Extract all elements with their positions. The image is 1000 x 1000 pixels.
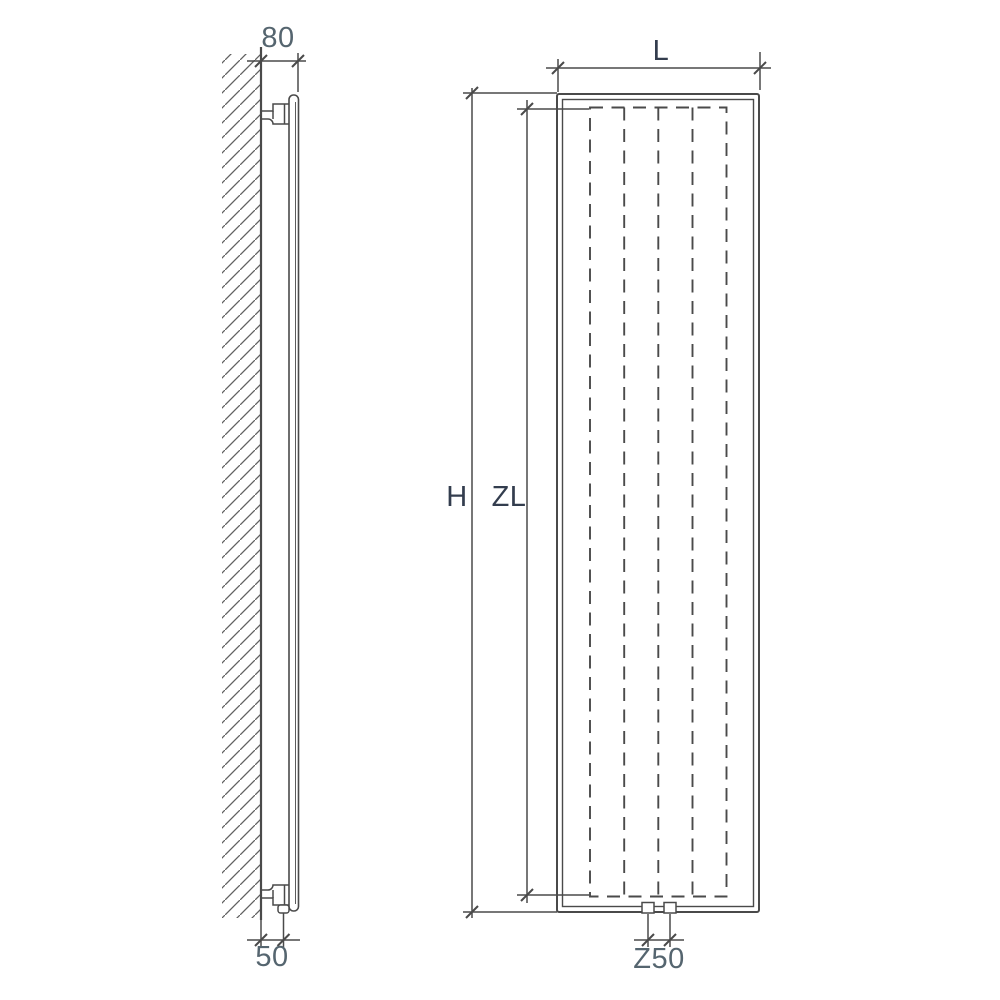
top-bracket [262, 104, 289, 124]
dim-label-ZL: ZL [492, 483, 527, 512]
radiator-technical-drawing: 80 50 L H ZL Z50 [0, 0, 1000, 1000]
side-view [222, 47, 306, 947]
wall-hatching [222, 54, 260, 918]
dim-label-80: 80 [261, 24, 294, 53]
radiator-side-panel [289, 95, 299, 911]
dim-label-L: L [653, 37, 670, 66]
dim-label-50: 50 [255, 943, 288, 972]
bottom-bracket [262, 885, 289, 905]
bottom-pipe [278, 905, 289, 913]
dim-label-Z50: Z50 [633, 945, 684, 974]
dim-label-H: H [446, 483, 467, 512]
